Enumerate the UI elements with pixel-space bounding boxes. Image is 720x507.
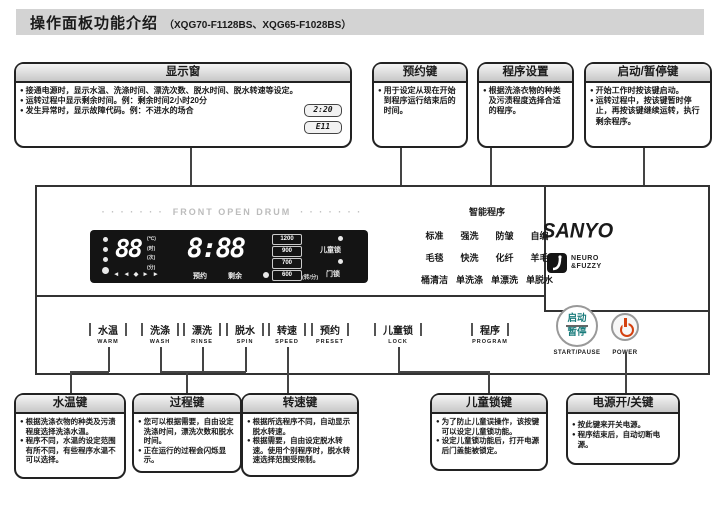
water-temp-bullet-1: 根据洗涤衣物的种类及污渍程度选择洗涤水温。 (26, 417, 120, 436)
connector-line (70, 371, 109, 373)
callout-preset-key: 预约键 ●用于设定从现在开始到程序运行结束后的时间。 (372, 62, 468, 148)
spin-button[interactable]: 脱水 SPIN (226, 322, 264, 345)
callout-title: 程序设置 (479, 64, 572, 83)
remaining-indicator-label: 剩余 (228, 271, 242, 281)
value-digits: 88 (115, 234, 141, 263)
connector-line (108, 347, 110, 372)
rinse-button[interactable]: 漂洗 RINSE (183, 322, 221, 345)
start-pause-button[interactable]: 启动 暂停 (556, 305, 598, 347)
connector-line (625, 352, 627, 395)
program-label: 标准 (417, 229, 452, 242)
child-lock-led (338, 236, 343, 241)
program-bullet-1: 根据洗涤衣物的种类及污渍程度选择合适的程序。 (489, 86, 568, 117)
power-bullet-2: 程序结束后，自动切断电源。 (578, 430, 674, 449)
status-led (103, 247, 108, 252)
speed-button[interactable]: 转速 SPEED (268, 322, 306, 345)
display-bullet-3: 发生异常时，显示故障代码。例：不进水的场合 (26, 106, 194, 116)
program-label: 强洗 (452, 229, 487, 242)
program-label: 桶清洁 (417, 273, 452, 286)
connector-line (287, 347, 289, 395)
control-panel: · · · · · · · FRONT OPEN DRUM · · · · · … (35, 185, 710, 375)
callout-title: 水温键 (16, 395, 124, 414)
water-temp-button[interactable]: 水温 WARM (89, 322, 127, 345)
preset-button[interactable]: 预约 PRESET (311, 322, 349, 345)
connector-line (398, 347, 400, 372)
speed-unit-label: (转/分) (302, 273, 318, 281)
display-bullet-1: 接通电源时，显示水温、洗涤时间、漂洗次数、脱水时间、脱水转速等设定。 (26, 86, 298, 96)
child-lock-bullet-2: 设定儿童锁功能后，打开电源后门盖能被锁定。 (442, 436, 542, 455)
start-bullet-1: 开始工作时按该键启动。 (596, 86, 684, 96)
door-lock-indicator-label: 门锁 (326, 269, 340, 279)
lcd-display: 88 (℃) (时) (次) (分) ◄ ◄ ◆ ► ► 8:88 预约 剩余 … (90, 230, 368, 283)
callout-title: 显示窗 (16, 64, 350, 83)
child-lock-indicator-label: 儿童锁 (320, 245, 341, 255)
callout-display-window: 显示窗 ●接通电源时，显示水温、洗涤时间、漂洗次数、脱水时间、脱水转速等设定。 … (14, 62, 352, 148)
water-temp-bullet-2: 程序不同，水温的设定范围有所不同，有些程序水温不可以选择。 (26, 436, 120, 465)
callout-program-setting: 程序设置 ●根据洗涤衣物的种类及污渍程度选择合适的程序。 (477, 62, 574, 148)
selector-arrows: ◄ ◄ ◆ ► ► (113, 270, 160, 278)
connector-line (160, 347, 162, 372)
program-label: 单洗涤 (452, 273, 487, 286)
neuro-fuzzy-icon (547, 253, 567, 273)
neuro-fuzzy-logo: NEURO &FUZZY (547, 253, 602, 273)
door-lock-led (338, 259, 343, 264)
status-led (103, 237, 108, 242)
connector-line (398, 371, 488, 373)
display-bullet-2: 运转过程中显示剩余时间。例：剩余时间2小时20分 (26, 96, 207, 106)
speed-bullet-1: 根据所选程序不同，自动显示脱水转速。 (253, 417, 353, 436)
callout-water-temp-key: 水温键 ●根据洗涤衣物的种类及污渍程度选择洗涤水温。 ●程序不同，水温的设定范围… (14, 393, 126, 479)
status-led (102, 267, 109, 274)
program-label: 单漂洗 (487, 273, 522, 286)
drum-type-label: · · · · · · · FRONT OPEN DRUM · · · · · … (77, 207, 387, 217)
speed-900: 900 (272, 246, 302, 257)
callout-title: 过程键 (134, 395, 240, 414)
unit-indicators: (℃) (时) (次) (分) (147, 235, 156, 273)
page-header: 操作面板功能介绍 （XQG70-F1128BS、XQG65-F1028BS） (16, 9, 704, 35)
status-led (103, 257, 108, 262)
power-icon (620, 323, 634, 337)
process-bullet-2: 正在运行的过程会闪烁显示。 (144, 446, 236, 465)
smart-programs-title: 智能程序 (417, 205, 557, 218)
connector-line (186, 371, 188, 395)
speed-700: 700 (272, 258, 302, 269)
model-numbers: （XQG70-F1128BS、XQG65-F1028BS） (164, 16, 351, 31)
callout-start-pause-key: 启动/暂停键 ●开始工作时按该键启动。 ●运转过程中，按该键暂时停止，再按该键继… (584, 62, 712, 148)
program-label: 单脱水 (522, 273, 557, 286)
connector-line (245, 347, 247, 372)
time-digits: 8:88 (187, 233, 244, 264)
connector-line (202, 347, 204, 372)
process-bullet-1: 您可以根据需要，自由设定洗涤时间，漂洗次数和脱水时间。 (144, 417, 236, 446)
callout-speed-key: 转速键 ●根据所选程序不同，自动显示脱水转速。 ●根据需要，自由设定脱水转速。使… (241, 393, 359, 477)
speed-led (263, 272, 269, 278)
smart-programs: 智能程序 标准 强洗 防皱 自编 毛毯 快洗 化纤 羊毛 桶清洁 单洗涤 单漂洗… (417, 205, 557, 286)
program-label: 快洗 (452, 251, 487, 264)
child-lock-bullet-1: 为了防止儿童误操作，该按键可以设定儿童锁功能。 (442, 417, 542, 436)
preset-indicator-label: 预约 (193, 271, 207, 281)
display-example-remaining-time: 2:20 (304, 104, 342, 117)
callout-child-lock-key: 儿童锁键 ●为了防止儿童误操作，该按键可以设定儿童锁功能。 ●设定儿童锁功能后，… (430, 393, 548, 471)
callout-title: 启动/暂停键 (586, 64, 710, 83)
connector-line (70, 371, 72, 395)
connector-line (160, 371, 246, 373)
page-title: 操作面板功能介绍 (30, 12, 158, 33)
brand-logo: SANYO (542, 219, 613, 243)
manual-page: 操作面板功能介绍 （XQG70-F1128BS、XQG65-F1028BS） 显… (0, 0, 720, 507)
callout-process-key: 过程键 ●您可以根据需要，自由设定洗涤时间，漂洗次数和脱水时间。 ●正在运行的过… (132, 393, 242, 473)
callout-title: 转速键 (243, 395, 357, 414)
callout-title: 电源开/关键 (568, 395, 678, 414)
power-bullet-1: 按此键来开关电源。 (578, 420, 646, 430)
speed-1200: 1200 (272, 234, 302, 245)
wash-button[interactable]: 洗涤 WASH (141, 322, 179, 345)
start-bullet-2: 运转过程中，按该键暂时停止，再按该键继续运转，执行剩余程序。 (596, 96, 706, 127)
panel-divider (37, 295, 544, 297)
display-example-error-code: E11 (304, 121, 342, 134)
connector-line (488, 371, 490, 395)
program-button[interactable]: 程序 PROGRAM (471, 322, 509, 345)
program-label: 防皱 (487, 229, 522, 242)
program-label: 毛毯 (417, 251, 452, 264)
preset-bullet-1: 用于设定从现在开始到程序运行结束后的时间。 (384, 86, 462, 117)
child-lock-button[interactable]: 儿童锁 LOCK (374, 322, 422, 345)
speed-600: 600 (272, 270, 302, 281)
callout-power-key: 电源开/关键 ●按此键来开关电源。 ●程序结束后，自动切断电源。 (566, 393, 680, 465)
speed-bullet-2: 根据需要，自由设定脱水转速。使用个别程序时，脱水转速选择范围受限制。 (253, 436, 353, 465)
callout-title: 预约键 (374, 64, 466, 83)
start-pause-label: START/PAUSE (554, 350, 601, 356)
power-button[interactable] (611, 313, 639, 341)
callout-title: 儿童锁键 (432, 395, 546, 414)
program-label: 化纤 (487, 251, 522, 264)
